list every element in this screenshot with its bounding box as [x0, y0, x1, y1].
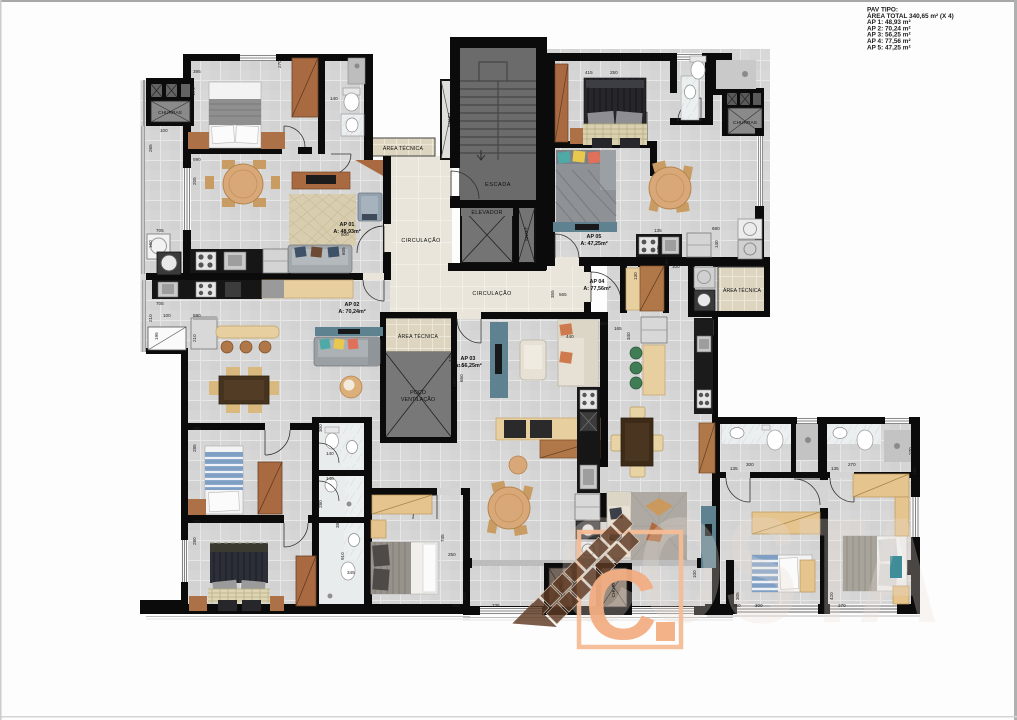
svg-text:100: 100 — [163, 313, 171, 318]
svg-text:CHURRAS: CHURRAS — [158, 110, 182, 116]
svg-text:500: 500 — [341, 232, 349, 237]
svg-text:270: 270 — [838, 603, 846, 608]
svg-text:440: 440 — [566, 334, 574, 339]
svg-text:705: 705 — [156, 228, 164, 233]
svg-text:260: 260 — [733, 603, 741, 608]
svg-text:285: 285 — [192, 444, 197, 452]
svg-text:AP 03: AP 03 — [461, 356, 476, 362]
svg-text:910: 910 — [340, 552, 345, 560]
svg-text:CHURRAS: CHURRAS — [733, 120, 757, 126]
svg-text:345: 345 — [347, 570, 355, 575]
svg-text:250: 250 — [448, 552, 456, 557]
svg-text:160: 160 — [148, 240, 153, 248]
svg-text:210: 210 — [456, 363, 464, 368]
svg-text:210: 210 — [192, 334, 197, 342]
svg-text:AP 05: AP 05 — [587, 234, 602, 240]
svg-text:ÁREA TÉCNICA: ÁREA TÉCNICA — [398, 333, 439, 340]
svg-text:395: 395 — [193, 69, 201, 74]
svg-text:AP 04: AP 04 — [590, 279, 605, 285]
svg-text:210: 210 — [148, 314, 153, 322]
svg-text:140: 140 — [330, 96, 338, 101]
svg-text:A: 70,24m²: A: 70,24m² — [338, 309, 365, 315]
svg-text:340: 340 — [626, 332, 631, 340]
svg-text:195: 195 — [664, 259, 669, 267]
svg-text:A: 47,25m²: A: 47,25m² — [580, 241, 607, 247]
svg-text:305: 305 — [735, 592, 740, 600]
svg-text:195: 195 — [154, 332, 159, 340]
svg-text:140: 140 — [326, 476, 334, 481]
svg-text:355: 355 — [550, 290, 555, 298]
svg-text:680: 680 — [712, 226, 720, 231]
svg-text:270: 270 — [586, 87, 591, 95]
svg-text:705: 705 — [156, 301, 164, 306]
svg-text:380: 380 — [335, 520, 340, 528]
svg-text:165: 165 — [614, 326, 622, 331]
svg-text:140: 140 — [326, 451, 334, 456]
svg-text:100: 100 — [672, 264, 680, 269]
svg-text:140: 140 — [714, 240, 719, 248]
svg-text:135: 135 — [730, 466, 738, 471]
svg-text:135: 135 — [831, 466, 839, 471]
svg-text:250: 250 — [610, 70, 618, 75]
svg-text:CIRCULAÇÃO: CIRCULAÇÃO — [472, 290, 511, 297]
svg-text:AP 01: AP 01 — [340, 222, 355, 228]
svg-text:100: 100 — [160, 128, 168, 133]
svg-text:300: 300 — [746, 462, 754, 467]
svg-text:205: 205 — [192, 177, 197, 185]
svg-text:AP 02: AP 02 — [345, 302, 360, 308]
svg-text:650: 650 — [459, 374, 464, 382]
svg-text:265: 265 — [193, 426, 201, 431]
svg-text:135: 135 — [912, 467, 917, 475]
svg-text:ÁREA TÉCNICA: ÁREA TÉCNICA — [383, 145, 424, 152]
svg-text:565: 565 — [559, 292, 567, 297]
svg-text:AP 5: 47,25 m²: AP 5: 47,25 m² — [867, 44, 911, 51]
svg-text:590: 590 — [193, 157, 201, 162]
svg-text:270: 270 — [277, 60, 282, 68]
svg-text:415: 415 — [585, 70, 593, 75]
svg-text:ELEVADOR: ELEVADOR — [471, 210, 502, 216]
svg-text:100: 100 — [692, 570, 697, 578]
svg-text:600: 600 — [600, 321, 608, 326]
svg-text:395: 395 — [193, 519, 201, 524]
svg-text:130: 130 — [633, 272, 638, 280]
svg-text:280: 280 — [318, 500, 323, 508]
svg-text:SHAFT: SHAFT — [524, 226, 529, 241]
svg-text:270: 270 — [908, 447, 913, 455]
svg-text:ÁREA TÉCNICA: ÁREA TÉCNICA — [723, 287, 761, 294]
svg-text:300: 300 — [755, 603, 763, 608]
svg-text:300: 300 — [318, 424, 323, 432]
svg-text:235: 235 — [492, 603, 500, 608]
svg-text:590: 590 — [193, 313, 201, 318]
svg-text:VENTILAÇÃO: VENTILAÇÃO — [401, 396, 435, 403]
svg-text:275: 275 — [656, 245, 661, 253]
svg-text:CIRCULAÇÃO: CIRCULAÇÃO — [401, 237, 440, 244]
svg-text:420: 420 — [829, 592, 834, 600]
svg-text:280: 280 — [192, 537, 197, 545]
svg-text:260: 260 — [452, 603, 460, 608]
svg-text:265: 265 — [148, 144, 153, 152]
svg-text:270: 270 — [191, 87, 196, 95]
svg-text:420: 420 — [448, 354, 453, 362]
svg-text:POÇO: POÇO — [410, 390, 426, 396]
svg-text:270: 270 — [848, 462, 856, 467]
svg-text:C: C — [585, 549, 657, 661]
svg-text:135: 135 — [462, 592, 467, 600]
svg-text:ESCADA: ESCADA — [485, 182, 511, 188]
svg-text:A: 77,56m²: A: 77,56m² — [583, 286, 610, 292]
svg-text:135: 135 — [654, 228, 662, 233]
svg-text:195: 195 — [452, 379, 457, 387]
svg-text:745: 745 — [440, 534, 445, 542]
svg-text:605: 605 — [341, 247, 346, 255]
